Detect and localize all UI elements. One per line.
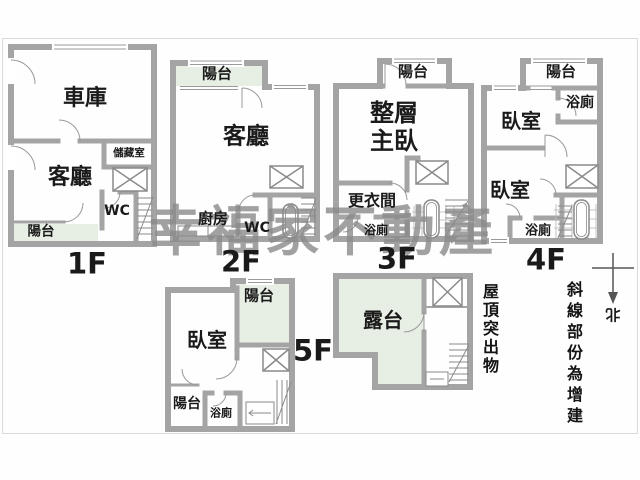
elevator-5f — [263, 349, 289, 371]
compass-north-label: 北 — [605, 307, 620, 322]
room-label-bedroom-bottom-4f: 臥室 — [490, 180, 530, 200]
elevator-roof — [433, 278, 462, 306]
room-label-bath-5f: 浴廁 — [210, 408, 232, 419]
room-label-balcony-top-5f: 陽台 — [244, 289, 274, 304]
room-label-terrace-roof: 露台 — [363, 310, 403, 330]
elevator-2f — [270, 166, 303, 188]
compass-icon — [592, 253, 634, 304]
floor-label-2f: 2F — [221, 248, 261, 277]
room-label-bath-3f: 浴廁 — [364, 224, 388, 236]
elevator-4f — [566, 165, 598, 188]
floor-plan-canvas: 幸福家不動產 車庫 客廳 儲藏室 WC 陽台 1F 陽台 客廳 廚房 WC 2F… — [0, 0, 640, 480]
room-label-wc-2f: WC — [244, 221, 270, 235]
room-label-garage-1f: 車庫 — [63, 88, 107, 110]
floor-label-1f: 1F — [67, 250, 107, 279]
roof-protrusion-note: 屋頂突出物 — [481, 283, 497, 376]
elevator-3f — [416, 161, 448, 184]
room-label-living-2f: 客廳 — [223, 126, 269, 149]
room-label-bedroom-top-4f: 臥室 — [501, 111, 541, 131]
room-label-bedroom-5f: 臥室 — [187, 330, 227, 350]
room-label-balcony-3f: 陽台 — [398, 65, 428, 80]
room-label-wc-1f: WC — [104, 204, 130, 218]
room-label-balcony-bottom-5f: 陽台 — [173, 397, 201, 411]
floor-label-3f: 3F — [377, 245, 417, 274]
stairs-5f — [246, 380, 291, 424]
stairs-roof — [426, 344, 469, 386]
room-label-dressing-3f: 更衣間 — [348, 193, 396, 209]
floor-label-4f: 4F — [526, 246, 566, 275]
room-label-balcony-1f: 陽台 — [28, 225, 55, 239]
room-label-kitchen-2f: 廚房 — [198, 212, 228, 227]
room-label-bath-bottom-4f: 浴廁 — [525, 225, 551, 238]
room-label-bath-top-4f: 浴廁 — [566, 96, 594, 110]
room-label-living-1f: 客廳 — [48, 167, 92, 189]
room-label-balcony-4f: 陽台 — [546, 65, 576, 80]
room-label-master-line2: 主臥 — [370, 129, 418, 153]
bathtub-4f — [574, 200, 589, 239]
room-label-balcony-2f: 陽台 — [202, 67, 232, 82]
elevator-1f — [113, 168, 147, 191]
floor-label-5f: 5F — [293, 337, 333, 366]
room-label-storage-1f: 儲藏室 — [113, 148, 145, 159]
room-label-master-line1: 整層 — [370, 101, 418, 125]
hatch-addition-note: 斜線部份為增建 — [565, 281, 581, 428]
